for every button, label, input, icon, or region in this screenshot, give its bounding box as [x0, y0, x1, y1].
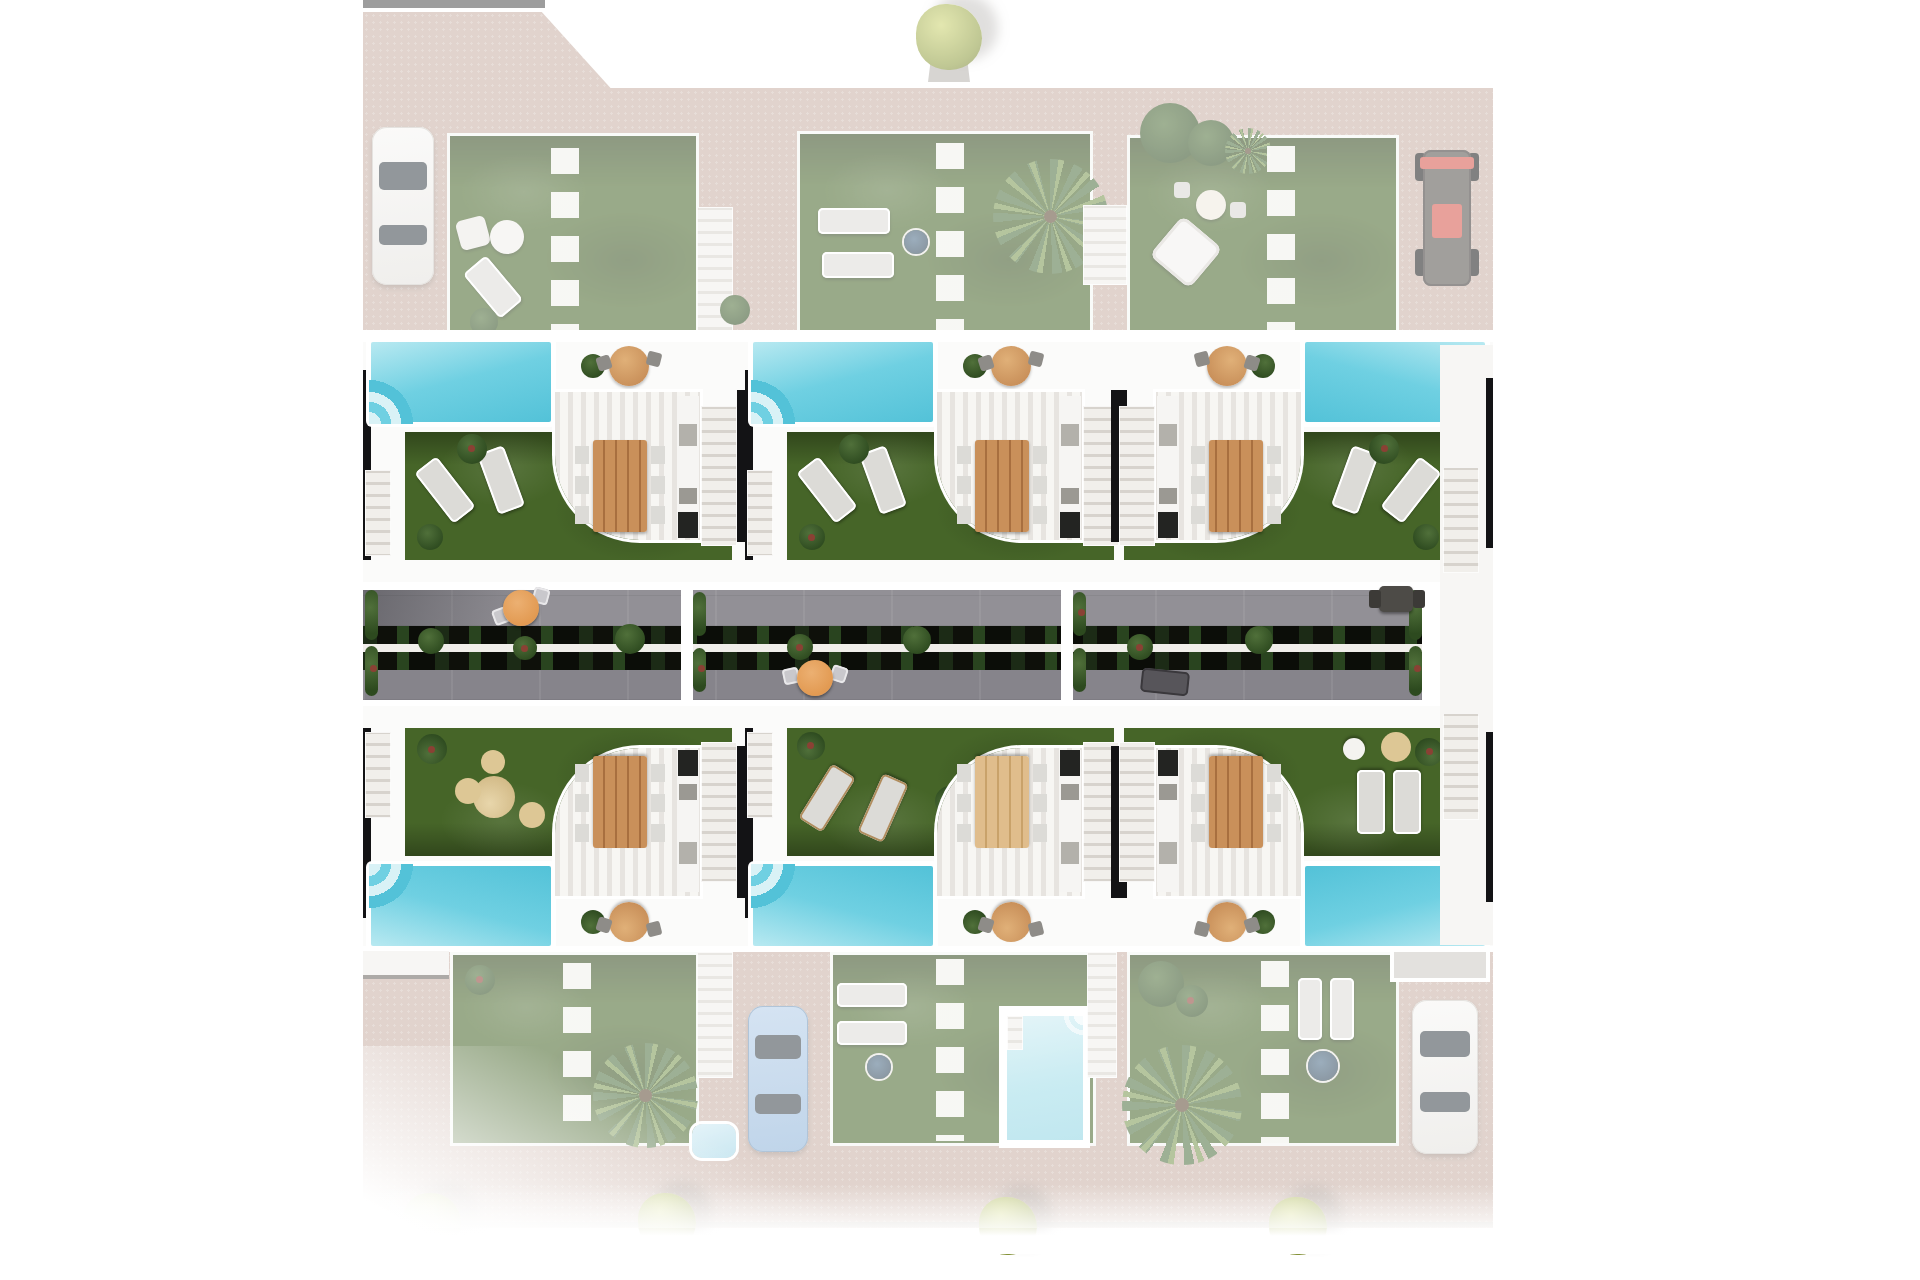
round-patio-table — [1207, 902, 1247, 942]
outdoor-kitchen — [1157, 396, 1179, 538]
round-garden-table — [1196, 190, 1226, 220]
divider-plants — [1073, 592, 1086, 636]
rear-garden-east — [1127, 952, 1399, 1146]
plunge-pool — [1007, 1016, 1083, 1140]
divider-plants — [693, 648, 706, 692]
site-plan-render — [0, 0, 1920, 1280]
dining-table — [975, 756, 1029, 848]
sun-lounger — [1357, 770, 1385, 834]
south-street-band — [363, 946, 1493, 1254]
pouf — [519, 802, 545, 828]
courtyard-divider — [681, 582, 693, 706]
side-steps — [747, 470, 773, 556]
bbq-grill — [678, 512, 698, 538]
bbq-grill — [1158, 750, 1178, 776]
kitchen-counter — [1061, 424, 1079, 446]
kitchen-counter — [1159, 842, 1177, 864]
swimming-pool — [371, 866, 551, 946]
palm-tree — [593, 1043, 698, 1148]
bbq-grill — [1158, 512, 1178, 538]
dining-set — [1191, 756, 1281, 848]
stepping-stones — [936, 959, 964, 1141]
stair-path-east — [1087, 952, 1117, 1078]
bistro-chair — [1413, 590, 1425, 608]
side-steps — [365, 470, 391, 556]
outdoor-kitchen — [1059, 750, 1081, 892]
planter-shrub — [513, 636, 537, 660]
side-steps — [365, 732, 391, 818]
round-patio-table — [991, 346, 1031, 386]
dining-chairs-left — [1267, 762, 1281, 842]
garden-chair — [1230, 202, 1246, 218]
planter-shrub — [1245, 626, 1273, 654]
dining-chairs-left — [575, 446, 589, 526]
neighbor-wall — [363, 0, 545, 8]
garden-plant — [1176, 985, 1208, 1017]
lawn-plant — [839, 434, 869, 464]
sun-lounger — [463, 255, 523, 319]
stepping-stones — [1261, 961, 1289, 1143]
courtyard-lounger — [1140, 668, 1190, 697]
stepping-stones — [551, 148, 579, 333]
edge-plants — [365, 590, 378, 640]
corridor-stairs — [1443, 467, 1479, 573]
street-tree — [916, 4, 982, 70]
sun-lounger — [414, 456, 475, 524]
planter-shrub — [615, 624, 645, 654]
kitchen-sink — [1061, 488, 1079, 504]
lawn-plant — [797, 732, 825, 760]
dining-chairs-right — [1191, 762, 1205, 842]
car-windshield — [379, 162, 426, 190]
lawn-plant — [799, 524, 825, 550]
carport-roof — [363, 951, 449, 979]
rear-garden-center — [797, 131, 1093, 339]
kitchen-counter — [1159, 424, 1177, 446]
trellis-screen — [1111, 390, 1119, 542]
sun-lounger — [1330, 978, 1354, 1040]
rear-garden-west — [450, 952, 699, 1146]
sun-lounger — [1298, 978, 1322, 1040]
planter-shrub — [418, 628, 444, 654]
dining-table — [975, 440, 1029, 532]
round-patio-table — [991, 902, 1031, 942]
side-stairs — [1119, 406, 1155, 546]
outdoor-kitchen — [1157, 750, 1179, 892]
car-white-north — [372, 127, 434, 285]
trellis-screen — [737, 746, 745, 898]
red-buggy — [1415, 133, 1479, 303]
side-steps — [747, 732, 773, 818]
dining-chairs-left — [1267, 446, 1281, 526]
pouf — [455, 778, 481, 804]
kitchen-counter — [679, 842, 697, 864]
garden-chair — [455, 215, 492, 252]
dining-set — [575, 440, 665, 532]
buggy-bar — [1420, 157, 1474, 169]
stepping-stones — [936, 143, 964, 331]
street-shrub — [638, 1193, 696, 1251]
garden-chair — [1174, 182, 1190, 198]
north-street-band — [363, 10, 1493, 342]
kitchen-sink — [1061, 784, 1079, 800]
villa-unit-north-west — [363, 342, 745, 582]
bbq-grill — [1060, 750, 1080, 776]
planter-shrub — [1127, 634, 1153, 660]
bistro-table — [1379, 586, 1413, 612]
street-shrub — [403, 1193, 461, 1251]
car-windshield — [755, 1035, 801, 1058]
villa-front-wall-north — [363, 330, 1493, 342]
sun-lounger — [1380, 456, 1441, 524]
pool-steps — [1007, 1016, 1023, 1050]
villa-unit-south-east — [1111, 706, 1493, 946]
sun-lounger — [822, 252, 894, 278]
bistro-set — [787, 656, 843, 700]
divider-plants — [1073, 648, 1086, 692]
rear-garden-east — [1127, 135, 1399, 339]
garden-plant — [465, 965, 495, 995]
car-windshield — [1420, 1031, 1470, 1057]
courtyard — [363, 582, 1440, 706]
walkway-south — [363, 670, 1425, 700]
stepping-stones — [1267, 146, 1295, 336]
dining-chairs-left — [575, 762, 589, 842]
car-rear-window — [755, 1094, 801, 1114]
dining-table — [1209, 756, 1263, 848]
round-garden-table — [490, 220, 524, 254]
trellis-screen — [1111, 746, 1119, 898]
street-shrub — [1269, 1197, 1327, 1255]
dining-chairs-left — [957, 446, 971, 526]
bistro-table — [503, 590, 539, 626]
dining-chairs-right — [1191, 446, 1205, 526]
pouf-set — [455, 758, 545, 828]
buggy-hood — [1432, 204, 1463, 238]
street-shrub — [979, 1197, 1037, 1255]
kitchen-counter — [679, 424, 697, 446]
potted-plant — [720, 295, 750, 325]
sun-lounger — [837, 1021, 907, 1045]
fire-pit — [904, 230, 928, 254]
dark-bistro-set — [1371, 584, 1421, 614]
kitchen-counter — [1061, 842, 1079, 864]
car-rear-window — [379, 225, 426, 246]
trellis-screen — [1486, 732, 1493, 902]
trellis-screen — [1486, 378, 1493, 548]
stair-path-east — [1083, 205, 1127, 285]
sun-lounger — [798, 763, 856, 832]
kitchen-sink — [679, 488, 697, 504]
bistro-chair — [1369, 590, 1381, 608]
swimming-pool — [753, 866, 933, 946]
rear-garden-west — [447, 133, 699, 339]
side-ball — [1343, 738, 1365, 760]
dining-set — [957, 440, 1047, 532]
dining-chairs-right — [651, 446, 665, 526]
dining-table — [593, 440, 647, 532]
side-stairs — [1119, 742, 1155, 882]
stair-path-west — [697, 952, 733, 1078]
sidewalk-line — [441, 1222, 1493, 1227]
north-pavement-cut — [540, 10, 1493, 88]
bistro-set — [493, 586, 549, 630]
pouf — [481, 750, 505, 774]
bistro-table — [797, 660, 833, 696]
lawn-plant — [417, 734, 447, 764]
kitchen-sink — [1159, 784, 1177, 800]
lawn-plant — [417, 524, 443, 550]
car-blue-south — [748, 1006, 808, 1152]
dining-chairs-right — [651, 762, 665, 842]
round-patio-table — [1207, 346, 1247, 386]
sun-lounger — [837, 983, 907, 1007]
lawn-plant — [1369, 434, 1399, 464]
trellis-screen — [737, 390, 745, 542]
carport-roof — [1390, 948, 1490, 982]
dining-set — [1191, 440, 1281, 532]
villa-unit-south-center — [745, 706, 1127, 946]
bbq-grill — [678, 750, 698, 776]
lawn-plant — [457, 434, 487, 464]
east-corridor — [1440, 345, 1493, 945]
planter-shrub — [903, 626, 931, 654]
dining-chairs-right — [1033, 446, 1047, 526]
bbq-grill — [1060, 512, 1080, 538]
villa-unit-north-east — [1111, 342, 1493, 582]
villa-unit-north-center — [745, 342, 1127, 582]
dining-set — [575, 756, 665, 848]
courtyard-divider — [1061, 582, 1073, 706]
dining-chairs-left — [957, 762, 971, 842]
sun-lounger — [857, 773, 909, 843]
sun-lounger — [1393, 770, 1421, 834]
side-stairs — [701, 742, 737, 882]
pool-swirl — [1043, 1016, 1083, 1052]
corridor-stairs — [1443, 713, 1479, 820]
car-rear-window — [1420, 1092, 1470, 1112]
edge-plants — [1409, 646, 1422, 696]
swimming-pool — [753, 342, 933, 422]
dining-table — [593, 756, 647, 848]
swimming-pool — [371, 342, 551, 422]
outdoor-kitchen — [677, 396, 699, 538]
lawn-plant — [1415, 738, 1443, 766]
kitchen-sink — [679, 784, 697, 800]
round-patio-table — [609, 902, 649, 942]
edge-plants — [365, 646, 378, 696]
round-patio-table — [609, 346, 649, 386]
divider-plants — [693, 592, 706, 636]
small-spa — [692, 1124, 736, 1158]
small-palm — [1225, 128, 1271, 174]
palm-tree — [1122, 1045, 1242, 1165]
stepping-stones — [563, 963, 591, 1138]
villa-unit-south-west — [363, 706, 745, 946]
dining-set — [957, 756, 1047, 848]
sun-lounger — [796, 456, 857, 524]
lawn-plant — [1413, 524, 1439, 550]
kitchen-sink — [1159, 488, 1177, 504]
sun-lounger — [818, 208, 890, 234]
fire-pit — [867, 1055, 891, 1079]
dining-table — [1209, 440, 1263, 532]
garden-spa — [1308, 1051, 1338, 1081]
pouf — [1381, 732, 1411, 762]
dining-chairs-right — [1033, 762, 1047, 842]
pool-deck — [999, 1006, 1090, 1148]
outdoor-kitchen — [677, 750, 699, 892]
rear-garden-center — [830, 952, 1096, 1146]
outdoor-kitchen — [1059, 396, 1081, 538]
side-stairs — [701, 406, 737, 546]
cabana-lounger — [1149, 215, 1222, 288]
car-white-south — [1412, 1000, 1478, 1154]
